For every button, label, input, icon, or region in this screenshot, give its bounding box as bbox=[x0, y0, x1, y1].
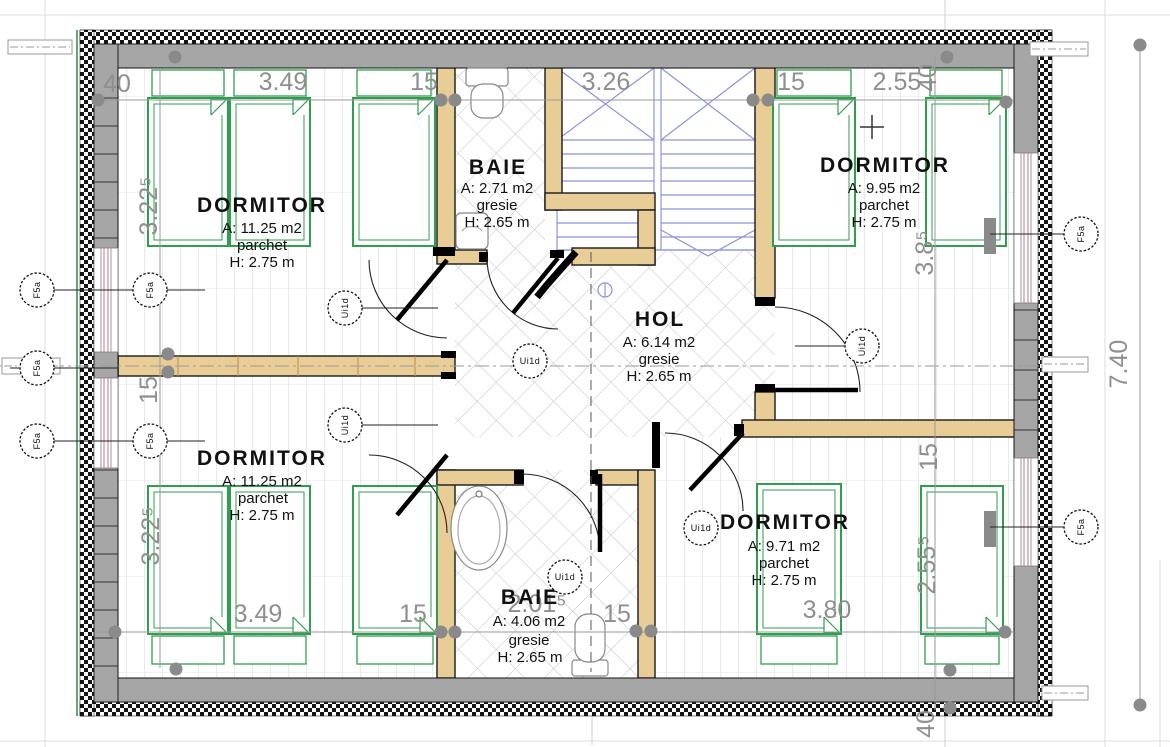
room-height: H: 2.75 m bbox=[851, 214, 916, 231]
room-name: BAIE bbox=[469, 156, 527, 179]
dim-label: 15 bbox=[915, 443, 943, 471]
window-left-1 bbox=[94, 248, 118, 352]
window-opening bbox=[94, 248, 118, 352]
headboard bbox=[761, 636, 837, 664]
headboard bbox=[152, 70, 224, 96]
jamb bbox=[550, 250, 564, 258]
window-tag-group: F5a bbox=[20, 351, 54, 385]
wall-bath-bottom-top-b bbox=[596, 470, 638, 485]
dim-label: 3.22⁵ bbox=[135, 176, 163, 235]
wall-bath-bottom-top-a bbox=[437, 470, 523, 485]
bed bbox=[353, 70, 435, 246]
jamb bbox=[755, 384, 775, 392]
window-tag-label: F5a bbox=[32, 281, 42, 298]
insulation-top bbox=[80, 30, 1052, 44]
room-height: H: 2.75 m bbox=[229, 254, 294, 271]
window-right-1 bbox=[1014, 153, 1038, 303]
window-tag-group: F5a bbox=[1064, 217, 1098, 251]
room-area: A: 4.06 m2 bbox=[493, 613, 566, 630]
room-label-baie-bottom: BAIE A: 4.06 m2 gresie H: 2.65 m bbox=[493, 586, 566, 666]
room-finish: gresie bbox=[509, 632, 550, 649]
window-opening bbox=[1014, 458, 1038, 566]
wall-bath-bottom-right bbox=[638, 470, 655, 678]
dim-label: 7.40 bbox=[1105, 340, 1133, 389]
wall-stair-upper bbox=[545, 193, 655, 210]
door-tag-label: Ui1d bbox=[555, 572, 576, 582]
room-finish: parchet bbox=[238, 490, 289, 507]
door-tag-label: Ui1d bbox=[340, 298, 350, 319]
window-tag-label: F5a bbox=[145, 432, 155, 449]
dim-label: 3.49 bbox=[234, 600, 283, 628]
jamb bbox=[441, 351, 456, 358]
window-tag-label: F5a bbox=[32, 432, 42, 449]
dim-label: 3.22⁵ bbox=[137, 506, 165, 565]
wall-stair-lower bbox=[572, 248, 655, 265]
floor-plan-drawing: 40 3.49 15 3.26 15 2.55 40 3.49 15 2.01⁵… bbox=[0, 0, 1170, 747]
dim-label: 40 bbox=[103, 70, 131, 98]
toilet-top-bath bbox=[466, 68, 508, 118]
door-tag-group: Ui1d bbox=[513, 344, 547, 378]
room-finish: parchet bbox=[237, 237, 288, 254]
dim-label: 40 bbox=[912, 710, 940, 738]
window-tag-group: F5a bbox=[20, 424, 54, 458]
door-tag-group: Ui1d bbox=[328, 408, 362, 442]
room-finish: parchet bbox=[759, 555, 810, 572]
room-height: H: 2.75 m bbox=[229, 507, 294, 524]
dim-label: 40 bbox=[914, 64, 942, 92]
floor-plan-canvas: 40 3.49 15 3.26 15 2.55 40 3.49 15 2.01⁵… bbox=[0, 0, 1170, 747]
room-area: A: 9.95 m2 bbox=[848, 180, 921, 197]
room-finish: gresie bbox=[477, 197, 518, 214]
room-name: DORMITOR bbox=[197, 447, 327, 470]
window-tag-group: F5a bbox=[20, 273, 54, 307]
room-height: H: 2.65 m bbox=[464, 214, 529, 231]
dim-label: 15 bbox=[135, 376, 163, 404]
jamb bbox=[514, 470, 524, 484]
wall-exterior-bottom bbox=[94, 678, 1038, 702]
wall-exterior-top bbox=[94, 44, 1038, 68]
tile-floor-hall bbox=[455, 250, 775, 437]
dim-label: 15 bbox=[603, 600, 631, 628]
jamb bbox=[652, 422, 660, 468]
wall-stair-left bbox=[545, 68, 562, 210]
dim-label: 15 bbox=[410, 68, 438, 96]
room-height: H: 2.75 m bbox=[751, 572, 816, 589]
dim-label: 3.26 bbox=[582, 68, 631, 96]
bed bbox=[353, 486, 437, 664]
room-name: BAIE bbox=[501, 586, 559, 609]
jamb bbox=[441, 372, 456, 379]
door-tag-label: Ui1d bbox=[340, 415, 350, 436]
insulation-right bbox=[1038, 30, 1052, 716]
dim-label: 15 bbox=[777, 68, 805, 96]
window-right-2 bbox=[1014, 458, 1038, 566]
wall-bedroom-tr-left-stub bbox=[755, 392, 775, 422]
window-tag-label: F5a bbox=[1076, 225, 1086, 242]
room-area: A: 11.25 m2 bbox=[222, 473, 302, 490]
bathtub-bottom-bath bbox=[451, 486, 507, 570]
headboard bbox=[925, 636, 999, 664]
nightstand bbox=[984, 218, 996, 254]
window-opening bbox=[1014, 153, 1038, 303]
room-name: DORMITOR bbox=[197, 194, 327, 217]
room-height: H: 2.65 m bbox=[626, 368, 691, 385]
dim-label: 2.55⁵ bbox=[913, 535, 941, 594]
wall-exterior-right bbox=[1014, 44, 1038, 702]
window-tag-label: F5a bbox=[32, 359, 42, 376]
window-tag-label: F5a bbox=[1076, 518, 1086, 535]
window-tag-group: F5a bbox=[133, 273, 167, 307]
room-label-baie-top: BAIE A: 2.71 m2 gresie H: 2.65 m bbox=[461, 156, 534, 231]
door-tag-label: Ui1d bbox=[520, 356, 541, 366]
dim-label: 15 bbox=[399, 600, 427, 628]
door-tag-group: Ui1d bbox=[684, 511, 718, 545]
headboard bbox=[234, 636, 306, 664]
dim-label: 3.49 bbox=[259, 68, 308, 96]
room-name: DORMITOR bbox=[720, 511, 850, 534]
room-name: DORMITOR bbox=[820, 154, 950, 177]
window-left-2 bbox=[94, 378, 118, 468]
insulation-bottom bbox=[80, 702, 1052, 716]
dim-label: 3.80 bbox=[803, 596, 852, 624]
headboard bbox=[152, 636, 224, 664]
window-opening bbox=[94, 378, 118, 468]
room-height: H: 2.65 m bbox=[497, 649, 562, 666]
jamb bbox=[433, 247, 455, 256]
headboard bbox=[357, 636, 433, 664]
room-area: A: 9.71 m2 bbox=[748, 538, 821, 555]
wall-bedroom-tr-bottom bbox=[742, 420, 1016, 437]
door-tag-label: Ui1d bbox=[857, 336, 867, 357]
door-tag-group: Ui1d bbox=[328, 291, 362, 325]
dim-label: 3.8⁵ bbox=[911, 230, 939, 275]
door-tag-group: Ui1d bbox=[548, 560, 582, 594]
jamb bbox=[755, 297, 775, 306]
room-area: A: 11.25 m2 bbox=[222, 220, 302, 237]
room-area: A: 6.14 m2 bbox=[623, 334, 696, 351]
nightstand bbox=[984, 511, 996, 547]
insulation-left bbox=[80, 30, 94, 716]
room-area: A: 2.71 m2 bbox=[461, 180, 534, 197]
room-name: HOL bbox=[635, 308, 685, 331]
window-tag-group: F5a bbox=[1064, 510, 1098, 544]
door-tag-label: Ui1d bbox=[691, 523, 712, 533]
door-tag-group: Ui1d bbox=[845, 329, 879, 363]
window-tag-group: F5a bbox=[133, 424, 167, 458]
wall-exterior-left bbox=[94, 44, 118, 702]
room-finish: parchet bbox=[859, 197, 910, 214]
room-finish: gresie bbox=[639, 351, 680, 368]
window-tag-label: F5a bbox=[145, 281, 155, 298]
